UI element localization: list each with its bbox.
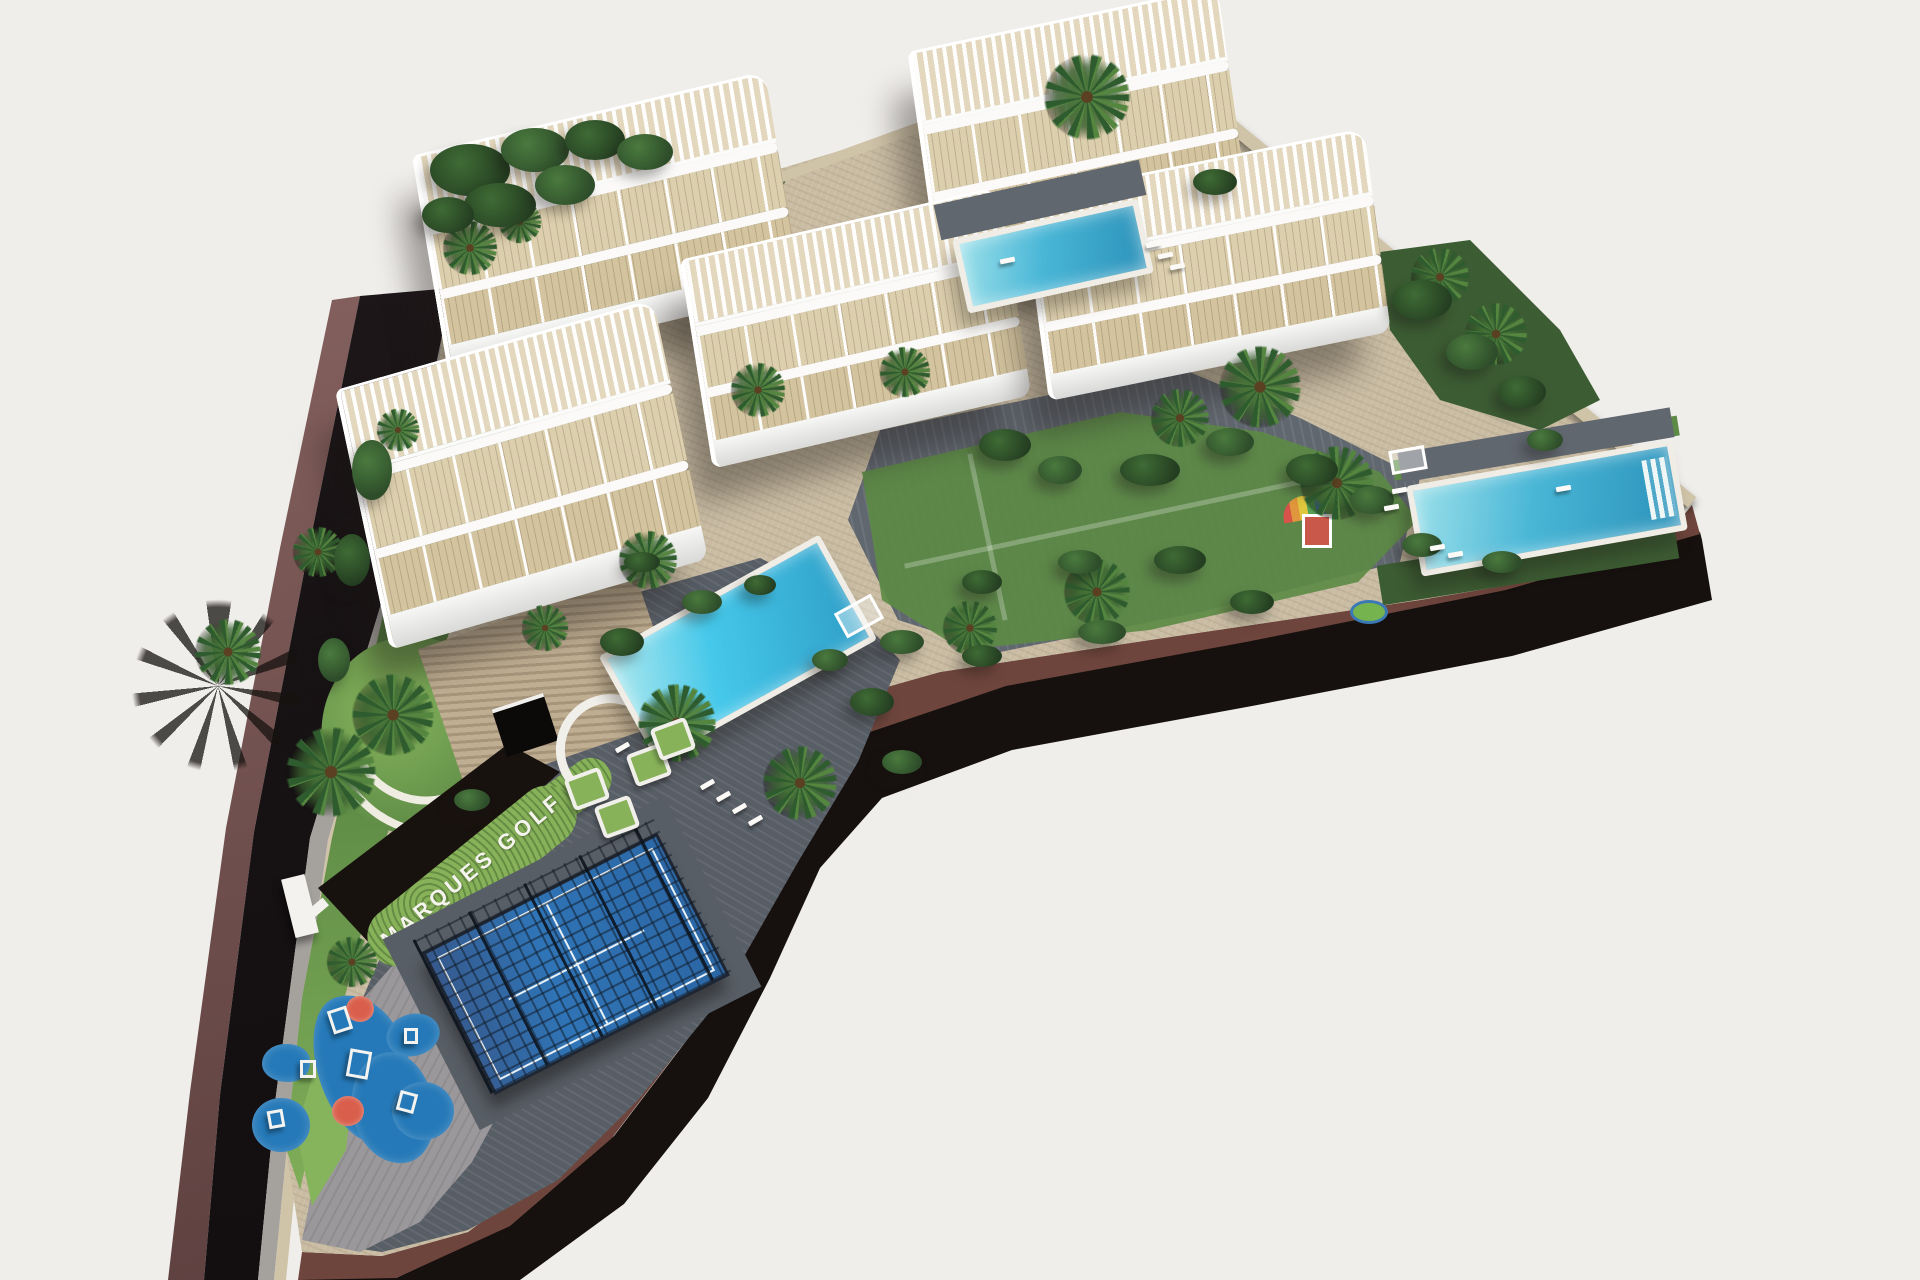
pool-steps <box>1641 456 1677 520</box>
shrub <box>1482 551 1522 573</box>
shrub <box>744 575 776 595</box>
spring-rider <box>300 1060 316 1078</box>
shrub <box>882 750 922 774</box>
shrub <box>422 197 474 233</box>
shrub <box>535 165 595 205</box>
shrub <box>1206 428 1254 456</box>
shrub <box>334 534 370 586</box>
trampoline <box>1350 600 1388 624</box>
shrub <box>1120 454 1180 486</box>
spring-rider <box>267 1109 286 1130</box>
play-post <box>404 1028 418 1044</box>
shrub <box>318 638 350 682</box>
shrub <box>454 789 490 811</box>
shrub <box>880 630 924 654</box>
aerial-site-render: MARQUES GOLF <box>0 0 1920 1280</box>
shrub <box>352 440 392 500</box>
shrub <box>624 552 660 572</box>
shrub <box>565 120 625 160</box>
shrub <box>1286 454 1338 486</box>
shrub <box>1446 334 1498 370</box>
shrub <box>464 183 536 227</box>
shrub <box>812 649 848 671</box>
shrub <box>1527 429 1563 451</box>
shrub <box>1392 280 1452 320</box>
shrub <box>617 134 673 170</box>
shrub <box>979 429 1031 461</box>
shrub <box>1193 169 1237 195</box>
shrub <box>682 590 722 614</box>
shrub <box>850 688 894 716</box>
playground-mat-accent <box>332 1096 364 1126</box>
shrub <box>600 628 644 656</box>
shrub <box>1498 376 1546 408</box>
shrub <box>1154 546 1206 574</box>
shrub <box>1058 550 1102 574</box>
shrub <box>962 570 1002 594</box>
shrub <box>1078 620 1126 644</box>
shrub <box>962 645 1002 667</box>
shrub <box>1230 590 1274 614</box>
shrub <box>1038 456 1082 484</box>
